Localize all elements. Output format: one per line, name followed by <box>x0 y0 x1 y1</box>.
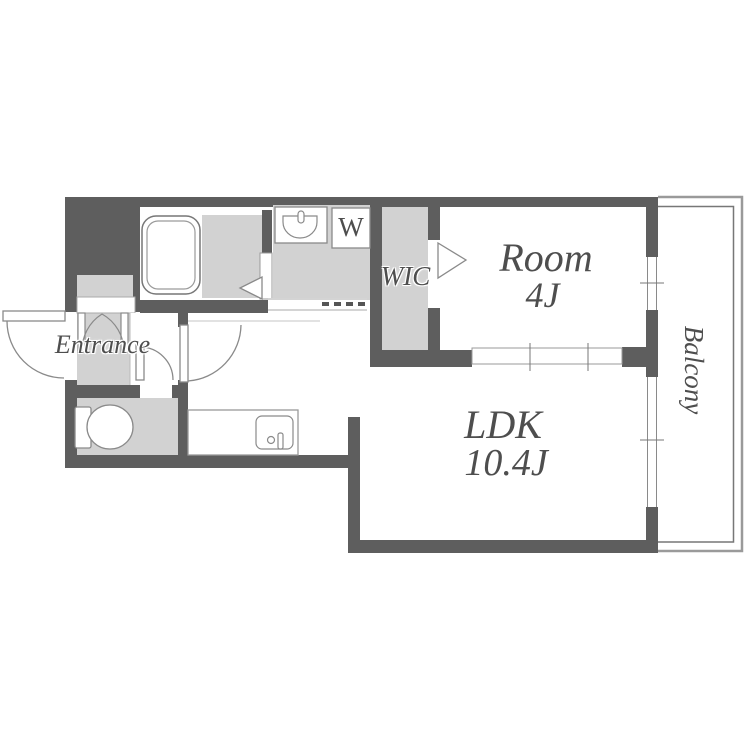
bathtub-icon <box>142 216 200 294</box>
accordion-door <box>268 298 367 311</box>
wic-label: WIC <box>378 263 433 290</box>
wall-segment <box>622 347 658 367</box>
wall-segment <box>178 380 188 468</box>
ldk-size-label: 10.4J <box>428 444 584 482</box>
kitchen-counter <box>188 410 298 455</box>
sliding-door <box>472 343 622 371</box>
wall-segment <box>65 385 140 398</box>
washbasin-icon <box>275 207 327 243</box>
wall-segment <box>348 417 360 553</box>
floor-plan-drawing <box>0 0 750 750</box>
washing-machine-label: W <box>332 214 370 241</box>
wall-segment <box>140 300 268 313</box>
wall-segment <box>65 455 360 468</box>
room-size-label: 4J <box>470 277 615 313</box>
kitchen-sink-icon <box>256 416 293 449</box>
wall-segment <box>140 197 658 207</box>
floor-plan: Entrance WIC Room 4J LDK 10.4J Balcony W <box>0 0 750 750</box>
entrance-label: Entrance <box>30 332 175 358</box>
wall-segment <box>370 350 472 367</box>
shoe-cabinet <box>77 275 133 297</box>
wic-opening-triangle <box>438 243 466 278</box>
wall-segment <box>428 308 440 350</box>
wall-segment <box>646 507 658 553</box>
room-label: Room <box>470 238 622 278</box>
windows <box>640 257 664 507</box>
wall-segment <box>348 540 658 553</box>
hall-door <box>180 325 241 382</box>
room-window <box>640 257 664 310</box>
wall-segment <box>262 210 272 255</box>
ldk-label: LDK <box>428 405 578 445</box>
wall-segment <box>646 197 658 257</box>
toilet-icon <box>75 405 133 449</box>
wall-segment <box>428 207 440 240</box>
balcony-label: Balcony <box>681 315 707 425</box>
wic-opening <box>428 240 466 308</box>
ldk-window <box>640 377 664 507</box>
